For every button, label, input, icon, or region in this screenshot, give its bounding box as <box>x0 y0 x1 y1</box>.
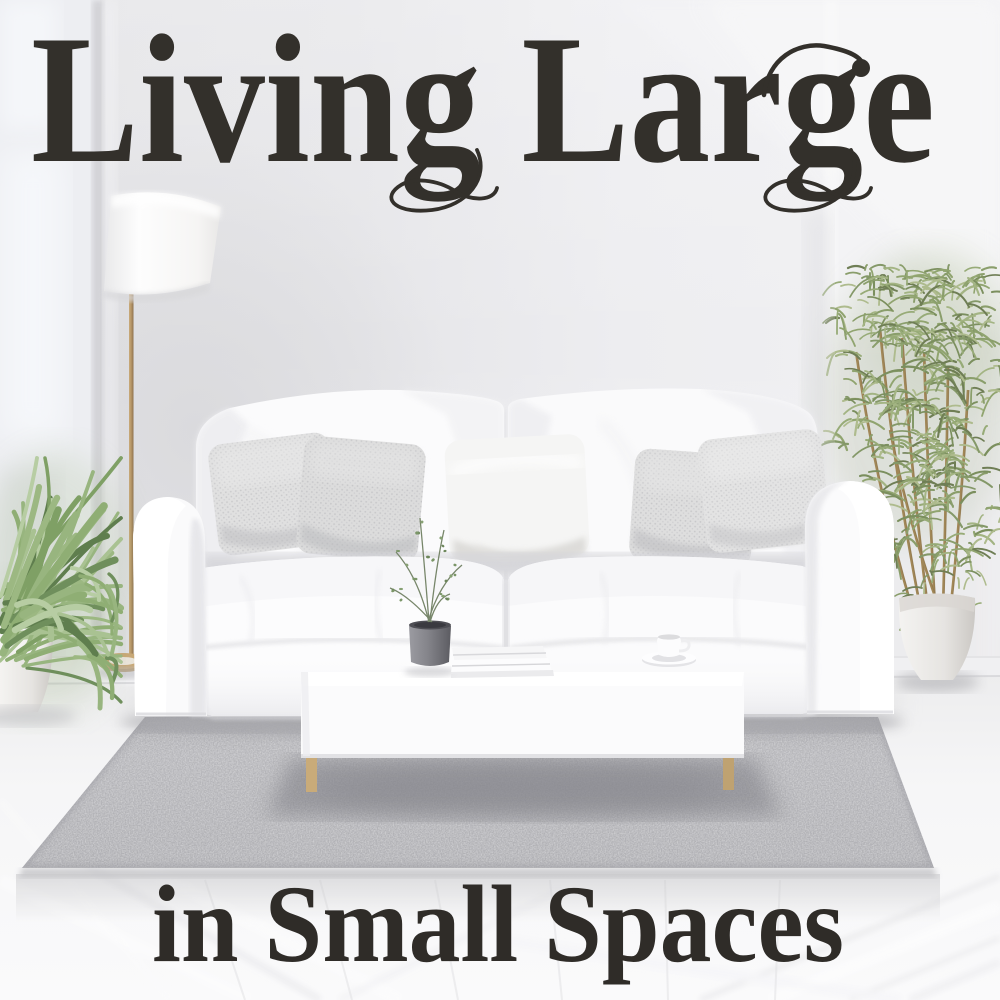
svg-text:Living Large: Living Large <box>31 0 935 202</box>
svg-text:in Small Spaces: in Small Spaces <box>152 863 844 985</box>
